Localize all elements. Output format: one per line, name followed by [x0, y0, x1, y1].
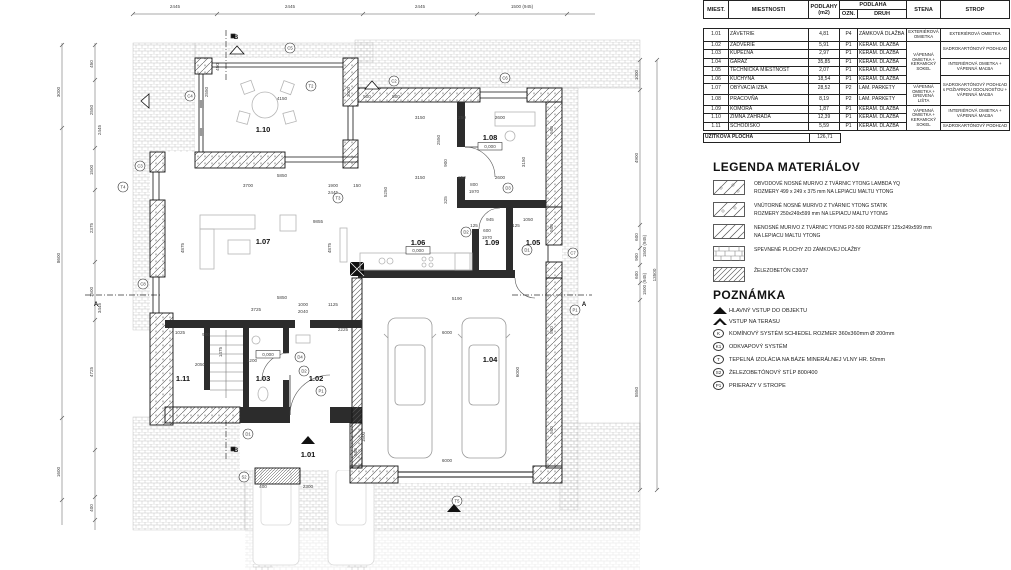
table-cell: INTERIÉROVÁ OMIETKA + VÁPENNÁ MAĽBA — [941, 105, 1010, 122]
table-cell: LAM. PARKETY — [858, 84, 907, 95]
marker-label: S2 — [241, 475, 247, 480]
legend-item-text: NENOSNÉ MURIVO Z TVÁRNIC YTONG P2-500 RO… — [754, 224, 932, 240]
dim-label: 1500 — [89, 164, 94, 175]
col-podlahy: PODLAHY (m2) — [809, 1, 840, 19]
legend-item-text: SPEVNENÉ PLOCHY ZO ZÁMKOVEJ DLAŽBY — [754, 246, 861, 255]
table-row: 1.04GARÁŽ35,85P1KERAM. DLAŽBAINTERIÉROVÁ… — [704, 58, 1010, 67]
terrace-triangle-icon — [713, 318, 727, 325]
table-cell: KOMORA — [729, 105, 809, 114]
table-row: 1.02ZÁDVERIE5,91P1KERAM. DLAŽBAVÁPENNÁ O… — [704, 41, 1010, 50]
marker-label: D2 — [463, 230, 469, 235]
table-cell: KERAM. DLAŽBA — [858, 58, 907, 67]
table-cell: SCHODISKO — [729, 122, 809, 131]
table-cell: SADROKARTÓNOVÝ PODHĽAD — [941, 122, 1010, 131]
room-label-1.04: 1.04 — [483, 355, 498, 364]
dim-label: 450 — [215, 63, 220, 71]
dim-label: 3150 — [521, 156, 526, 167]
dim-label: 3000 — [56, 86, 61, 97]
room-label-1.07: 1.07 — [256, 237, 271, 246]
col-ozn: OZN. — [840, 10, 858, 19]
total-value: 126,71 — [809, 134, 840, 143]
dim-label: 1500 — [89, 286, 94, 297]
table-cell: EXTERIÉROVÁ OMIETKA — [907, 29, 941, 41]
note-item: HLAVNÝ VSTUP DO OBJEKTU — [713, 307, 1008, 314]
dim-label: 1050 — [523, 217, 534, 222]
note-text: VSTUP NA TERASU — [729, 319, 780, 325]
note-item: VSTUP NA TERASU — [713, 318, 1008, 325]
marker-label: C2 — [391, 79, 397, 84]
dim-label: 2375 — [89, 222, 94, 233]
marker-label: P1 — [572, 308, 578, 313]
dim-label: 1970 — [469, 189, 480, 194]
room-label-1.11: 1.11 — [176, 374, 190, 383]
legend-item: NENOSNÉ MURIVO Z TVÁRNIC YTONG P2-500 RO… — [713, 224, 1008, 240]
dim-label: 2300 — [303, 484, 314, 489]
table-cell: VÁPENNÁ OMIETKA + DREVENÁ LIŠTA — [907, 84, 941, 106]
dim-label: 2550 — [436, 134, 441, 145]
legend-item-text: VNÚTORNÉ NOSNÉ MURIVO Z TVÁRNIC YTONG ST… — [754, 202, 888, 218]
table-cell: 1.03 — [704, 50, 729, 59]
table-cell: PRACOVŇA — [729, 94, 809, 105]
table-cell: 1.05 — [704, 67, 729, 76]
concrete-swatch — [713, 267, 745, 282]
dim-label: 150 — [353, 183, 361, 188]
table-cell: P1 — [840, 67, 858, 76]
dim-label: 6000 — [515, 366, 520, 377]
dim-label: 3150 — [415, 175, 426, 180]
dim-label: 900 — [634, 253, 639, 261]
dim-label: 500 — [353, 448, 358, 456]
ytong-int-swatch — [713, 202, 745, 217]
marker-label: C8 — [140, 282, 146, 287]
dim-label: 3150 — [415, 115, 426, 120]
table-cell: INTERIÉROVÁ OMIETKA + VÁPENNÁ MAĽBA — [941, 58, 1010, 75]
dim-label: 400 — [259, 484, 267, 489]
room-label-1.08: 1.08 — [483, 133, 498, 142]
table-cell: KERAM. DLAŽBA — [858, 75, 907, 84]
table-cell: 1.08 — [704, 94, 729, 105]
dim-label: 2445 — [415, 4, 426, 9]
marker-label: D1 — [524, 248, 530, 253]
materials-legend: LEGENDA MATERIÁLOV OBVODOVÉ NOSNÉ MURIVO… — [713, 160, 1008, 288]
table-cell: 1.09 — [704, 105, 729, 114]
room-label-1.10: 1.10 — [256, 125, 271, 134]
dim-label: 2445 — [97, 124, 102, 135]
code-S2-icon: S2 — [713, 368, 724, 377]
marker-label: P1 — [318, 389, 324, 394]
table-cell: KERAM. DLAŽBA — [858, 105, 907, 114]
marker-label: C5 — [287, 46, 293, 51]
table-cell: 35,85 — [809, 58, 840, 67]
code-T-icon: T — [713, 355, 724, 364]
ytong-ext-swatch — [713, 180, 745, 195]
dim-label: 900 — [202, 332, 210, 337]
dim-label: 250 — [458, 115, 466, 120]
table-row: 1.06KUCHYŇA18,54P1KERAM. DLAŽBASADROKART… — [704, 75, 1010, 84]
table-cell: KÚPEĽŇA — [729, 50, 809, 59]
dim-label: 250 — [458, 175, 466, 180]
dim-label: 1500 (945) — [642, 272, 647, 295]
table-cell: P4 — [840, 29, 858, 41]
dim-label: 2040 — [298, 309, 309, 314]
table-cell: P2 — [840, 94, 858, 105]
legend-item: VNÚTORNÉ NOSNÉ MURIVO Z TVÁRNIC YTONG ST… — [713, 202, 1008, 218]
dim-label: 450 — [89, 60, 94, 68]
dim-label: 3700 — [243, 183, 254, 188]
table-cell: TECHNICKÁ MIESTNOSŤ — [729, 67, 809, 76]
floorplan-sheet: { "table": { "headers": {"miest":"MIEST.… — [0, 0, 1011, 570]
section-label-B: B — [234, 448, 239, 454]
code-P1-icon: P1 — [713, 381, 724, 390]
table-row: 1.09KOMORA1,87P1KERAM. DLAŽBAVÁPENNÁ OMI… — [704, 105, 1010, 114]
note-item: TTEPELNÁ IZOLÁCIA NA BÁZE MINERÁLNEJ VLN… — [713, 355, 1008, 364]
room-table-header: MIEST. MIESTNOSTI PODLAHY (m2) PODLAHA S… — [703, 0, 1010, 19]
note-item: KKOMÍNOVÝ SYSTÉM SCHIEDEL ROZMER 360x360… — [713, 329, 1008, 338]
table-cell: EXTERIÉROVÁ OMIETKA — [941, 29, 1010, 41]
dim-label: 400 — [89, 504, 94, 512]
table-cell: 1.11 — [704, 122, 729, 131]
marker-label: C4 — [187, 94, 193, 99]
dim-label: 4875 — [180, 242, 185, 253]
entrance-triangle-icon — [713, 307, 727, 314]
table-cell: P1 — [840, 50, 858, 59]
marker-label: T3 — [336, 196, 342, 201]
table-cell: 1.10 — [704, 114, 729, 123]
table-cell: P1 — [840, 75, 858, 84]
dim-label: 600 — [634, 271, 639, 279]
dim-label: 1500 — [361, 431, 366, 442]
level-value: 0,000 — [262, 352, 274, 357]
dim-label: 3725 — [251, 307, 262, 312]
code-K-icon: K — [713, 329, 724, 338]
marker-label: D1 — [245, 432, 251, 437]
dim-label: 1500 (945) — [511, 4, 534, 9]
table-cell: 12,39 — [809, 114, 840, 123]
room-label-1.02: 1.02 — [309, 374, 324, 383]
table-cell: KERAM. DLAŽBA — [858, 114, 907, 123]
table-cell: ZÁDVERIE — [729, 41, 809, 50]
info-panel: MIEST. MIESTNOSTI PODLAHY (m2) PODLAHA S… — [700, 0, 1011, 570]
dim-label: 6000 — [442, 330, 453, 335]
note-text: KOMÍNOVÝ SYSTÉM SCHIEDEL ROZMER 360x360m… — [729, 331, 894, 337]
dim-label: 8600 — [56, 252, 61, 263]
table-cell: 5,91 — [809, 41, 840, 50]
note-text: PRIERAZY V STROPE — [729, 383, 786, 389]
table-cell: VÁPENNÁ OMIETKA + KERAMICKÝ SOKEL — [907, 105, 941, 131]
table-cell: P2 — [840, 84, 858, 95]
table-cell: 4,81 — [809, 29, 840, 41]
table-cell: KUCHYŇA — [729, 75, 809, 84]
dim-label: 2600 — [495, 115, 506, 120]
total-label: ÚŽITKOVÁ PLOCHA — [704, 134, 810, 143]
dim-label: 500 — [549, 224, 554, 232]
table-cell: P1 — [840, 41, 858, 50]
dim-label: 5550 — [634, 386, 639, 397]
dim-label: 2550 — [204, 86, 209, 97]
dim-label: 325 — [443, 196, 448, 204]
col-strop: STROP — [941, 1, 1010, 19]
dim-label: 125 — [470, 223, 478, 228]
dim-label: 2225 — [338, 327, 349, 332]
table-cell: P1 — [840, 58, 858, 67]
dim-label: 2550 — [89, 104, 94, 115]
dim-label: 125 — [512, 223, 520, 228]
table-cell: 5,59 — [809, 122, 840, 131]
col-podlaha: PODLAHA — [840, 1, 907, 10]
dim-label: 4150 — [277, 96, 288, 101]
table-cell: 1.04 — [704, 58, 729, 67]
dim-label: 1970 — [482, 235, 493, 240]
dim-label: 945 — [486, 217, 494, 222]
dim-label: 1000 — [634, 69, 639, 80]
level-value: 0,000 — [412, 248, 424, 253]
notes-section: POZNÁMKA HLAVNÝ VSTUP DO OBJEKTUVSTUP NA… — [713, 288, 1008, 394]
col-miest: MIEST. — [704, 1, 729, 19]
dim-label: 900 — [443, 159, 448, 167]
table-cell: P1 — [840, 122, 858, 131]
dim-label: 500 — [549, 426, 554, 434]
table-cell: 28,52 — [809, 84, 840, 95]
room-table-total: ÚŽITKOVÁ PLOCHA 126,71 — [703, 133, 841, 143]
section-label-B: B — [234, 35, 239, 41]
table-cell: VÁPENNÁ OMIETKA + KERAMICKÝ SOKEL — [907, 41, 941, 84]
marker-label: D2 — [301, 369, 307, 374]
level-value: 0,000 — [484, 144, 496, 149]
table-row: 1.11SCHODISKO5,59P1KERAM. DLAŽBASADROKAR… — [704, 122, 1010, 131]
dim-label: 1200 — [247, 358, 258, 363]
dim-label: 6000 — [442, 458, 453, 463]
room-table-body: 1.01ZÁVETRIE4,81P4ZÁMKOVÁ DLAŽBAEXTERIÉR… — [703, 28, 1010, 131]
table-cell: ZÁMKOVÁ DLAŽBA — [858, 29, 907, 41]
dim-label: 2050 — [195, 362, 206, 367]
legend-item: SPEVNENÉ PLOCHY ZO ZÁMKOVEJ DLAŽBY — [713, 246, 1008, 261]
notes-title: POZNÁMKA — [713, 288, 1008, 302]
legend-item: OBVODOVÉ NOSNÉ MURIVO Z TVÁRNIC YTONG LA… — [713, 180, 1008, 196]
dim-label: 5190 — [452, 296, 463, 301]
table-cell: ZIMNÁ ZÁHRADA — [729, 114, 809, 123]
table-cell: 1.07 — [704, 84, 729, 95]
marker-label: C3 — [137, 164, 143, 169]
marker-label: T4 — [121, 185, 127, 190]
note-text: ODKVAPOVÝ SYSTÉM — [729, 344, 787, 350]
dim-label: 600 — [483, 228, 491, 233]
section-label-A: A — [582, 302, 587, 308]
dim-label: 2445 — [285, 4, 296, 9]
room-table: MIEST. MIESTNOSTI PODLAHY (m2) PODLAHA S… — [703, 0, 1009, 143]
dim-label: 13500 — [652, 268, 657, 281]
dim-label: 5250 — [383, 186, 388, 197]
dim-label: 1600 — [56, 466, 61, 477]
note-text: ŽELEZOBETÓNOVÝ STĹP 800/400 — [729, 370, 818, 376]
table-cell: 18,54 — [809, 75, 840, 84]
room-label-1.01: 1.01 — [301, 450, 316, 459]
marker-label: C7 — [570, 251, 576, 256]
table-cell: OBÝVACIA IZBA — [729, 84, 809, 95]
dim-label: 500 — [363, 94, 371, 99]
dim-label: 1025 — [175, 330, 186, 335]
dim-label: 500 — [549, 326, 554, 334]
pavers-swatch — [713, 246, 745, 261]
table-cell: 8,19 — [809, 94, 840, 105]
dim-label: 800 — [470, 182, 478, 187]
dim-label: 1125 — [328, 302, 338, 307]
dim-label: 1500 (945) — [642, 234, 647, 257]
floor-plan: 1.101.071.081.061.091.051.111.031.021.01… — [0, 0, 700, 570]
col-druh: DRUH — [858, 10, 907, 19]
dim-label: 3000 — [346, 86, 351, 97]
legend-item-text: ŽELEZOBETÓN C30/37 — [754, 267, 808, 276]
marker-label: T2 — [309, 84, 315, 89]
table-cell: SADROKARTÓNOVÝ PODHĽAD — [941, 41, 1010, 58]
note-text: HLAVNÝ VSTUP DO OBJEKTU — [729, 308, 807, 314]
note-item: S2ŽELEZOBETÓNOVÝ STĹP 800/400 — [713, 368, 1008, 377]
legend-item: ŽELEZOBETÓN C30/37 — [713, 267, 1008, 282]
table-cell: KERAM. DLAŽBA — [858, 41, 907, 50]
table-cell: 2,97 — [809, 50, 840, 59]
note-item: P1PRIERAZY V STROPE — [713, 381, 1008, 390]
table-cell: 1,87 — [809, 105, 840, 114]
table-cell: KERAM. DLAŽBA — [858, 67, 907, 76]
dim-label: 4875 — [327, 242, 332, 253]
table-cell: LAM. PARKETY — [858, 94, 907, 105]
code-K1-icon: K1 — [713, 342, 724, 351]
note-text: TEPELNÁ IZOLÁCIA NA BÁZE MINERÁLNEJ VLNY… — [729, 357, 885, 363]
table-cell: P1 — [840, 114, 858, 123]
table-cell: GARÁŽ — [729, 58, 809, 67]
dim-label: 1900 — [328, 183, 339, 188]
legend-item-text: OBVODOVÉ NOSNÉ MURIVO Z TVÁRNIC YTONG LA… — [754, 180, 900, 196]
dim-label: 600 — [634, 233, 639, 241]
dim-label: 1000 — [298, 302, 309, 307]
table-cell: 1.02 — [704, 41, 729, 50]
table-cell: SADROKARTÓNOVÝ PODHĽAD s POŽIARNOU ODOLN… — [941, 75, 1010, 105]
table-cell: KERAM. DLAŽBA — [858, 50, 907, 59]
table-cell: P1 — [840, 105, 858, 114]
table-cell: 1.06 — [704, 75, 729, 84]
marker-label: D4 — [297, 355, 303, 360]
dim-label: 1475 — [218, 346, 223, 357]
table-cell: 1.01 — [704, 29, 729, 41]
nonbearing-swatch — [713, 224, 745, 239]
dim-label: 500 — [549, 126, 554, 134]
table-cell: KERAM. DLAŽBA — [858, 122, 907, 131]
note-item: K1ODKVAPOVÝ SYSTÉM — [713, 342, 1008, 351]
dim-label: 5850 — [277, 173, 288, 178]
dim-label: 500 — [392, 94, 400, 99]
dim-label: 4900 — [634, 152, 639, 163]
dim-label: 2600 — [495, 175, 506, 180]
dim-label: 4725 — [89, 366, 94, 377]
marker-label: C6 — [502, 76, 508, 81]
col-miestnosti: MIESTNOSTI — [729, 1, 809, 19]
legend-title: LEGENDA MATERIÁLOV — [713, 160, 1008, 174]
table-cell: 2,07 — [809, 67, 840, 76]
marker-label: T5 — [455, 499, 461, 504]
section-label-A: A — [94, 302, 99, 308]
room-label-1.03: 1.03 — [256, 374, 271, 383]
dim-label: 5850 — [277, 295, 288, 300]
room-label-1.06: 1.06 — [411, 238, 426, 247]
table-cell: ZÁVETRIE — [729, 29, 809, 41]
dim-label: 2445 — [170, 4, 181, 9]
table-row: 1.01ZÁVETRIE4,81P4ZÁMKOVÁ DLAŽBAEXTERIÉR… — [704, 29, 1010, 41]
col-stena: STENA — [907, 1, 941, 19]
dim-label: 9855 — [313, 219, 324, 224]
marker-label: D3 — [505, 186, 511, 191]
